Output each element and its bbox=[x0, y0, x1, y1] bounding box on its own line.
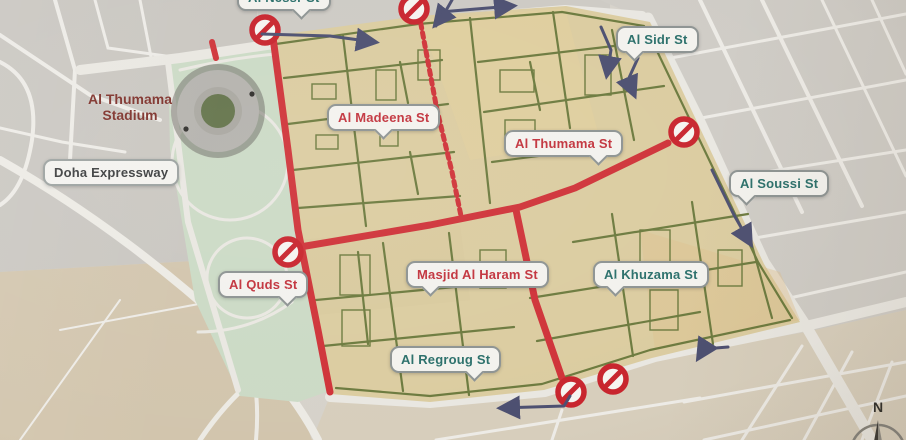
street-label-al-quds: Al Quds St bbox=[218, 271, 308, 298]
printed-map-photo: N Al Nessr St Al Sidr St Al Madeena St A… bbox=[0, 0, 906, 440]
street-label-masjid-al-haram: Masjid Al Haram St bbox=[406, 261, 549, 288]
closed-ramp-stub bbox=[212, 42, 216, 58]
stadium-label-line2: Stadium bbox=[66, 107, 194, 123]
road-label-doha-expressway: Doha Expressway bbox=[43, 159, 179, 186]
compass-north-letter: N bbox=[873, 399, 883, 415]
street-label-text: Masjid Al Haram St bbox=[417, 267, 538, 282]
no-entry-icon bbox=[671, 119, 697, 145]
street-label-text: Al Khuzama St bbox=[604, 267, 698, 282]
street-label-text: Al Soussi St bbox=[740, 176, 818, 191]
street-label-text: Al Nessr St bbox=[248, 0, 320, 5]
stadium-label-line1: Al Thumama bbox=[66, 91, 194, 107]
no-entry-icon bbox=[275, 239, 301, 265]
street-label-al-regroug: Al Regroug St bbox=[390, 346, 501, 373]
street-label-al-khuzama: Al Khuzama St bbox=[593, 261, 709, 288]
street-label-al-madeena: Al Madeena St bbox=[327, 104, 440, 131]
stadium-label: Al Thumama Stadium bbox=[66, 91, 194, 123]
no-entry-icon bbox=[252, 17, 278, 43]
map-graphics: N bbox=[0, 0, 906, 440]
street-label-al-soussi: Al Soussi St bbox=[729, 170, 829, 197]
street-label-al-nessr: Al Nessr St bbox=[237, 0, 331, 11]
street-label-text: Doha Expressway bbox=[54, 165, 168, 180]
no-entry-icon bbox=[558, 379, 584, 405]
no-entry-icon bbox=[401, 0, 427, 22]
street-label-al-thumama-st: Al Thumama St bbox=[504, 130, 623, 157]
no-entry-icon bbox=[600, 366, 626, 392]
street-label-al-sidr: Al Sidr St bbox=[616, 26, 699, 53]
